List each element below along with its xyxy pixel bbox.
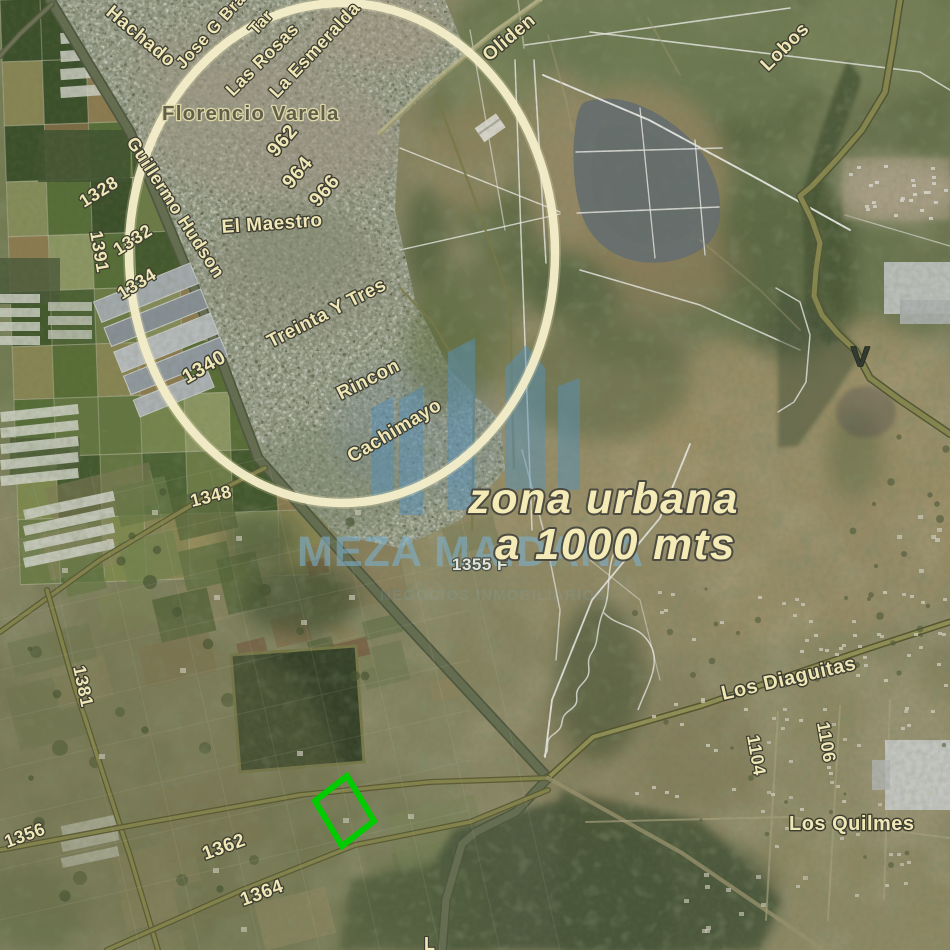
svg-text:zona urbana: zona urbana xyxy=(467,475,739,523)
svg-text:V: V xyxy=(851,341,870,372)
svg-text:a 1000 mts: a 1000 mts xyxy=(495,520,736,569)
svg-text:Los Quilmes: Los Quilmes xyxy=(789,813,915,835)
svg-text:L: L xyxy=(424,934,436,950)
svg-text:Florencio Varela: Florencio Varela xyxy=(162,102,340,125)
svg-text:NEGOCIOS INMOBILIARIOS: NEGOCIOS INMOBILIARIOS xyxy=(380,587,606,604)
